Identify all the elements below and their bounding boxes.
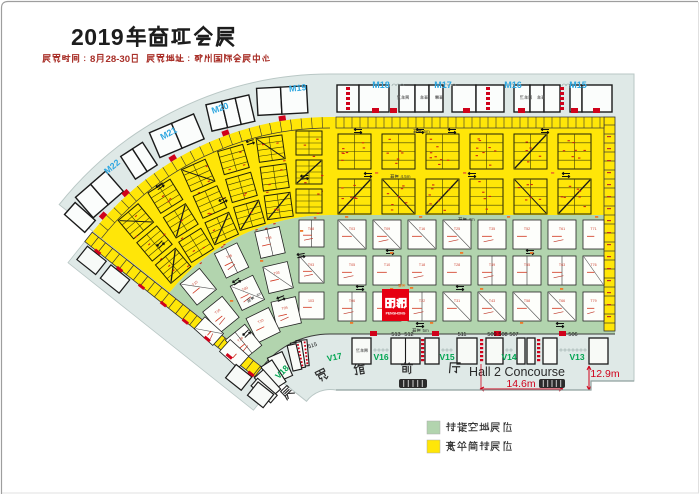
svg-text:T66: T66 xyxy=(559,299,565,303)
svg-text:507: 507 xyxy=(509,332,518,338)
svg-text:5m: 5m xyxy=(423,328,430,333)
svg-text:T76: T76 xyxy=(590,263,596,267)
svg-text:Hall 2 Concourse: Hall 2 Concourse xyxy=(469,365,565,379)
svg-text:T55: T55 xyxy=(524,263,530,267)
svg-text:V14: V14 xyxy=(501,352,516,362)
svg-text:508: 508 xyxy=(498,332,507,338)
svg-text:T22: T22 xyxy=(419,299,425,303)
svg-text:T39: T39 xyxy=(489,263,495,267)
svg-text:T71: T71 xyxy=(590,227,596,231)
svg-text:T09: T09 xyxy=(384,227,390,231)
svg-text:M16: M16 xyxy=(504,80,522,90)
svg-text:V16: V16 xyxy=(373,352,388,362)
svg-text:506: 506 xyxy=(568,332,577,338)
svg-text:V15: V15 xyxy=(439,352,454,362)
svg-text:14.6m: 14.6m xyxy=(506,378,535,390)
svg-text:512: 512 xyxy=(404,332,413,338)
svg-text:513: 513 xyxy=(391,332,400,338)
svg-text:PENGHONG: PENGHONG xyxy=(386,312,406,316)
svg-text:2019: 2019 xyxy=(71,24,124,50)
svg-text:T03: T03 xyxy=(349,227,355,231)
svg-text:T43: T43 xyxy=(489,299,495,303)
svg-text:12.9m: 12.9m xyxy=(590,368,619,380)
svg-text:T58: T58 xyxy=(524,299,530,303)
svg-text:M17: M17 xyxy=(434,80,452,90)
svg-text:M15: M15 xyxy=(569,80,587,90)
svg-text:T05: T05 xyxy=(349,263,355,267)
svg-text:T35: T35 xyxy=(489,227,495,231)
svg-text:T93: T93 xyxy=(308,263,314,267)
svg-text:T18: T18 xyxy=(419,263,425,267)
svg-text:28-30: 28-30 xyxy=(106,54,131,65)
svg-text:T52: T52 xyxy=(524,227,530,231)
svg-text:T61: T61 xyxy=(559,227,565,231)
svg-text:511: 511 xyxy=(458,332,467,338)
svg-text:4.5m: 4.5m xyxy=(401,174,411,179)
svg-text:M19: M19 xyxy=(288,82,306,94)
svg-text:M18: M18 xyxy=(372,80,390,90)
svg-text:T63: T63 xyxy=(559,263,565,267)
svg-text:T88: T88 xyxy=(308,227,314,231)
svg-text:8: 8 xyxy=(90,54,96,65)
svg-text:V13: V13 xyxy=(569,352,584,362)
svg-text:103: 103 xyxy=(308,299,314,303)
svg-text:T06: T06 xyxy=(349,299,355,303)
svg-text:509: 509 xyxy=(487,332,496,338)
svg-text:T28: T28 xyxy=(454,263,460,267)
svg-text:5m: 5m xyxy=(424,129,431,134)
svg-text:T25: T25 xyxy=(454,227,460,231)
svg-text:T16: T16 xyxy=(419,227,425,231)
svg-text:T31: T31 xyxy=(454,299,460,303)
svg-text:T10: T10 xyxy=(384,263,390,267)
svg-text:T79: T79 xyxy=(590,299,596,303)
